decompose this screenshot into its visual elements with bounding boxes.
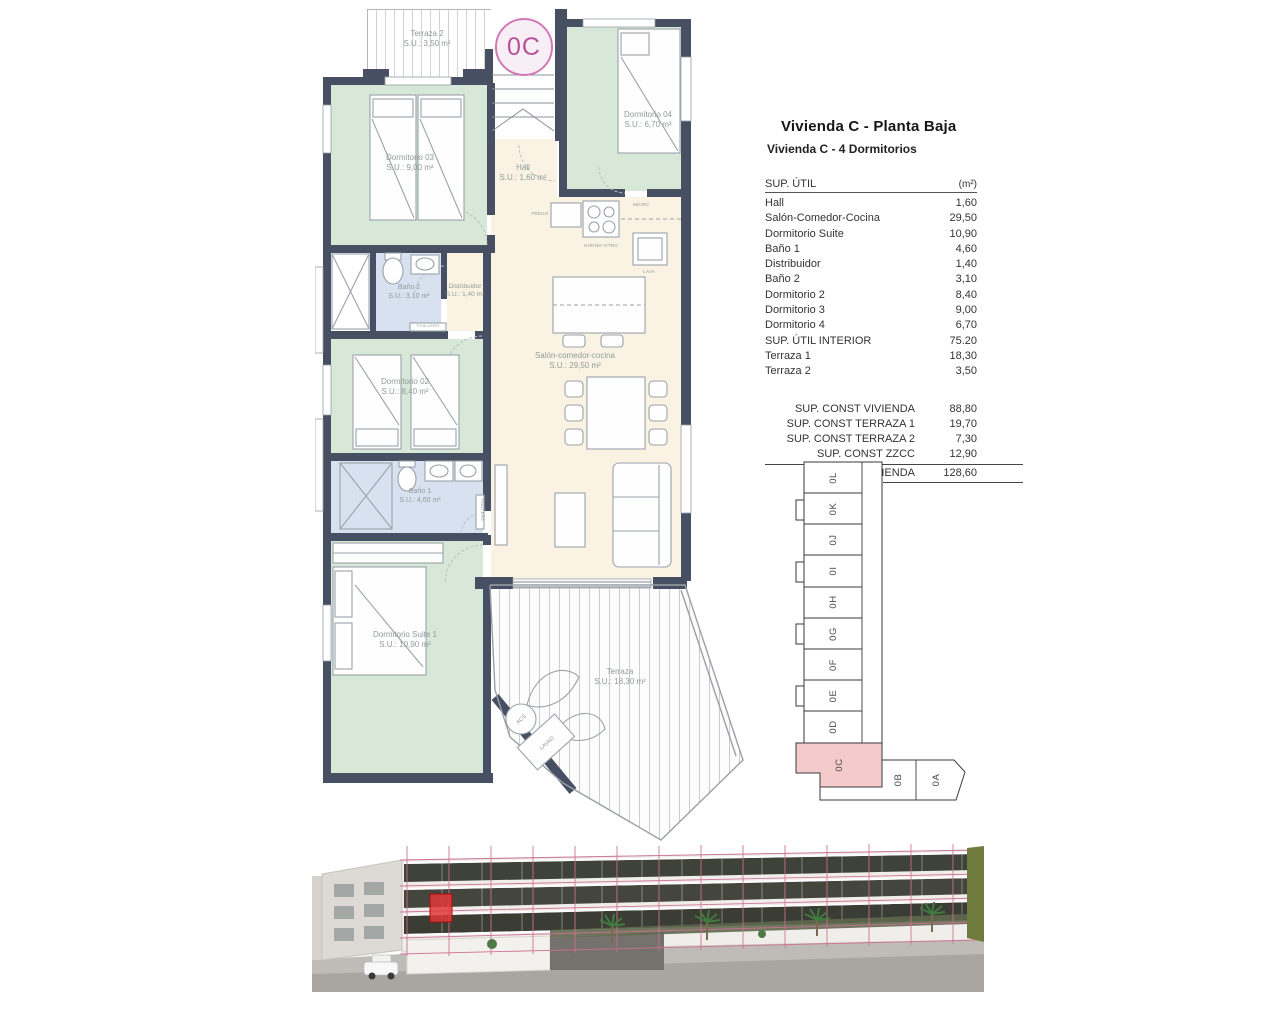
page-title: Vivienda C - Planta Baja xyxy=(781,118,1023,135)
label-terraza2: Terraza 2 S.U.: 3,50 m² xyxy=(367,29,487,50)
label-dormitorio02: Dormitorio 02 S.U.: 8,40 m² xyxy=(345,377,465,398)
label-terraza: Terraza S.U.: 18,30 m² xyxy=(560,667,680,688)
area-table: Hall1,60 Salón-Comedor-Cocina29,50 Dormi… xyxy=(765,196,1023,380)
room-dormitorio04-area xyxy=(567,25,681,191)
label-toallero-bano1: TOALLERO xyxy=(476,498,484,521)
keyplan-unit-label: 0K xyxy=(828,503,839,516)
label-lava: LAVA xyxy=(633,269,665,274)
label-frego: FREGO xyxy=(527,211,553,216)
keyplan-unit-0c-label: 0C xyxy=(834,758,845,771)
table-row: Dormitorio 46,70 xyxy=(765,318,977,333)
keyplan-strip xyxy=(804,462,882,743)
table-row: Distribuidor1,40 xyxy=(765,257,977,272)
keyplan-unit-label: 0I xyxy=(828,567,839,576)
render-hedge xyxy=(967,846,984,942)
key-plan: 0L 0K 0J 0I 0H 0G 0F 0E 0D 0C 0B 0A xyxy=(790,456,990,808)
totals-row: SUP. CONST TERRAZA 119,70 xyxy=(765,417,977,432)
building-render xyxy=(312,842,984,992)
label-bano1: Baño 1 S.U.: 4,60 m² xyxy=(370,487,470,505)
table-row: Salón-Comedor-Cocina29,50 xyxy=(765,211,977,226)
table-row: Dormitorio Suite10,90 xyxy=(765,227,977,242)
totals-row: SUP. CONST TERRAZA 27,30 xyxy=(765,432,977,447)
keyplan-unit-label: 0F xyxy=(828,659,839,671)
label-suite: Dormitorio Suite 1 S.U.: 10,90 m² xyxy=(345,630,465,651)
room-salon-area xyxy=(491,197,681,581)
label-salon: Salón-comedor-cocina S.U.: 29,50 m² xyxy=(515,351,635,372)
label-toallero-bano2: TOALLERO xyxy=(411,324,445,329)
label-micro: MICRO xyxy=(625,202,657,207)
keyplan-unit-label: 0D xyxy=(828,720,839,733)
table-row: Dormitorio 28,40 xyxy=(765,288,977,303)
header-unit: (m²) xyxy=(959,179,977,190)
render-unit-0c-highlight xyxy=(430,894,452,922)
label-dormitorio04: Dormitorio 04 S.U.: 6,70 m² xyxy=(588,110,708,131)
page-subtitle: Vivienda C - 4 Dormitorios xyxy=(767,142,1023,156)
keyplan-unit-label: 0J xyxy=(828,534,839,545)
keyplan-unit-label: 0L xyxy=(828,472,839,484)
keyplan-unit-label: 0E xyxy=(828,690,839,703)
table-row: Baño 14,60 xyxy=(765,242,977,257)
keyplan-unit-label: 0B xyxy=(893,774,904,787)
shower-nook-area xyxy=(331,253,370,331)
unit-badge: 0C xyxy=(495,18,553,76)
info-panel: Vivienda C - Planta Baja Vivienda C - 4 … xyxy=(765,118,1023,483)
label-dormitorio03: Dormitorio 03 S.U.: 9,00 m² xyxy=(350,153,470,174)
label-bano2: Baño 2 S.U.: 3,10 m² xyxy=(377,283,441,301)
keyplan-unit-label: 0H xyxy=(828,595,839,608)
totals-row: SUP. CONST VIVIENDA88,80 xyxy=(765,402,977,417)
table-row: Hall1,60 xyxy=(765,196,977,211)
room-suite-area xyxy=(331,541,483,773)
label-hall: Hall S.U.: 1,60 m² xyxy=(493,163,553,184)
room-terraza-area xyxy=(490,583,746,845)
keyplan-unit-label: 0G xyxy=(828,627,839,641)
label-distribuidor: Distribuidor S.U.: 1,40 m² xyxy=(441,283,489,300)
floor-plan: ACS LAVAD 0C Terraza 2 S.U.: 3,50 m² Dor… xyxy=(315,5,765,843)
table-row: SUP. ÚTIL INTERIOR75.20 xyxy=(765,334,977,349)
page: ACS LAVAD 0C Terraza 2 S.U.: 3,50 m² Dor… xyxy=(0,0,1280,1024)
table-row: Terraza 23,50 xyxy=(765,364,977,379)
table-row: Baño 23,10 xyxy=(765,272,977,287)
area-table-header: SUP. ÚTIL (m²) xyxy=(765,178,977,193)
header-label: SUP. ÚTIL xyxy=(765,178,816,190)
table-row: Terraza 118,30 xyxy=(765,349,977,364)
table-row: Dormitorio 39,00 xyxy=(765,303,977,318)
label-horno-vitro: HORNO VITRO xyxy=(575,243,627,248)
keyplan-unit-label: 0A xyxy=(931,774,942,787)
